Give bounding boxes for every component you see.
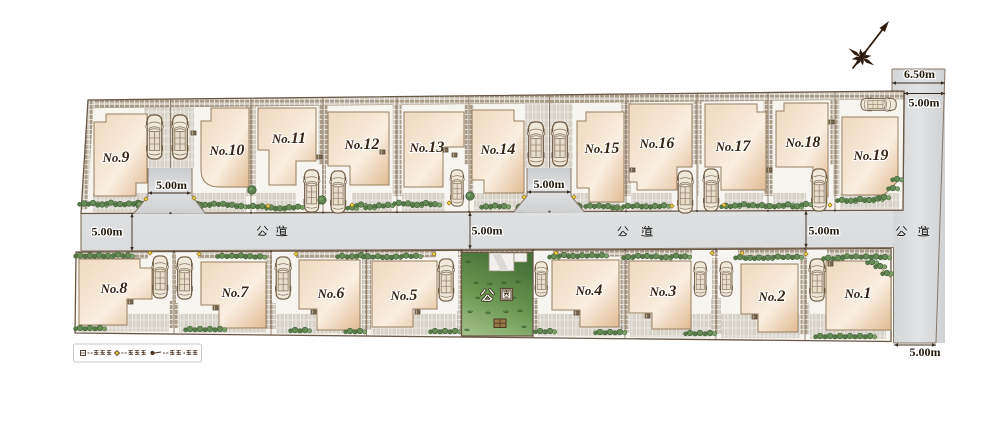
svg-text:5.00m: 5.00m [809,224,840,238]
svg-text:No.11: No.11 [271,130,306,147]
svg-text:No.12: No.12 [344,136,380,153]
svg-text:No.9: No.9 [102,149,130,166]
svg-text:No.18: No.18 [785,134,821,151]
svg-text:6.50m: 6.50m [904,67,935,81]
svg-text:No.2: No.2 [758,288,786,305]
svg-text:No.7: No.7 [221,284,250,301]
svg-text:5.00m: 5.00m [909,96,940,110]
svg-text:No.6: No.6 [317,285,345,302]
svg-text:No.14: No.14 [480,141,516,158]
svg-text:No.5: No.5 [390,287,418,304]
svg-text:No.4: No.4 [575,282,603,299]
svg-text:No.1: No.1 [844,285,872,302]
svg-text:No.13: No.13 [409,139,445,156]
svg-text:No.17: No.17 [715,138,752,155]
svg-text:No.19: No.19 [853,147,889,164]
svg-text:No.10: No.10 [209,142,245,159]
svg-text:5.00m: 5.00m [92,225,123,239]
svg-text:No.8: No.8 [100,280,128,297]
svg-text:5.00m: 5.00m [534,177,565,191]
svg-text:5.00m: 5.00m [156,178,187,192]
svg-text:5.00m: 5.00m [910,345,941,359]
svg-text:No.3: No.3 [649,283,677,300]
svg-text:No.15: No.15 [584,140,620,157]
svg-text:No.16: No.16 [639,135,675,152]
svg-text:5.00m: 5.00m [472,224,503,238]
